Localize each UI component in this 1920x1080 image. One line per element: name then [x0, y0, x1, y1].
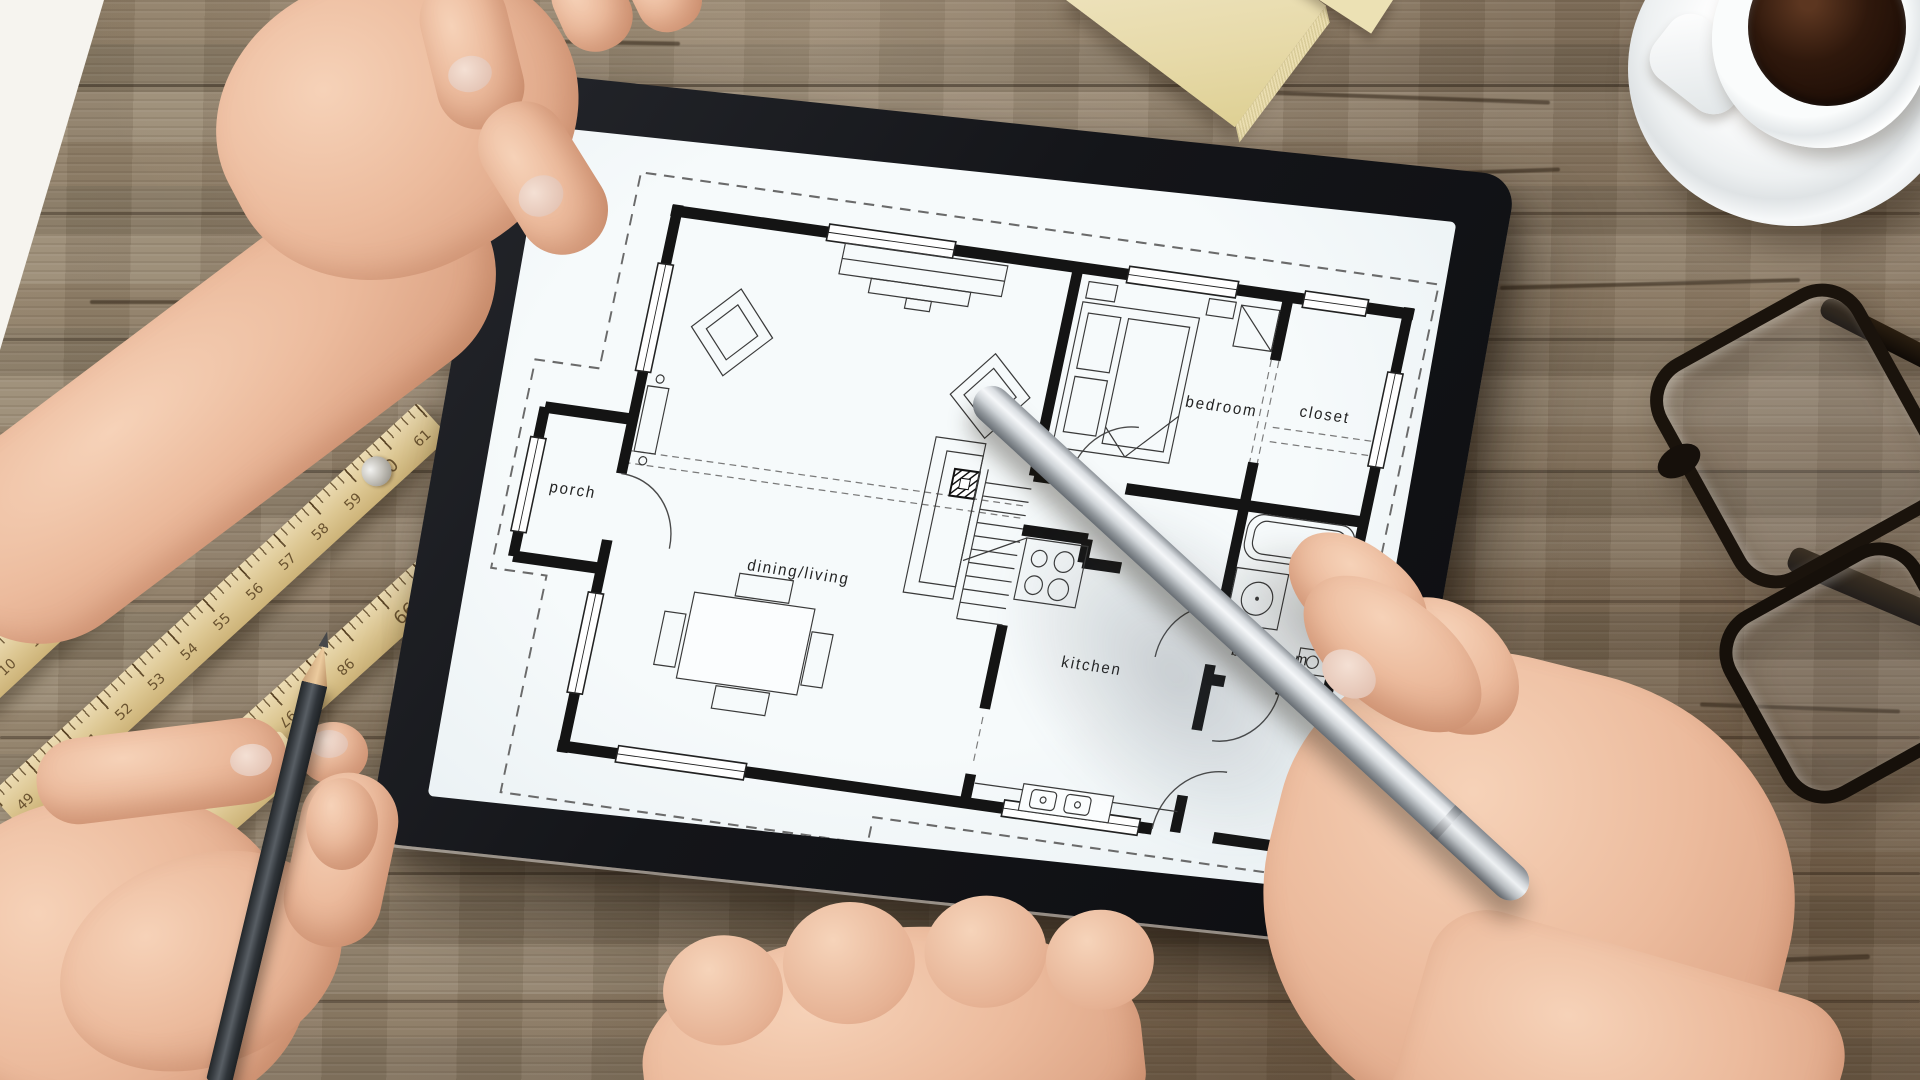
room-label-porch: porch: [548, 479, 598, 503]
ruler-number: 52: [112, 700, 136, 724]
ruler-number: 53: [145, 670, 169, 694]
ruler-number: 55: [210, 610, 234, 634]
dining-table: [646, 564, 843, 722]
room-label-dining-living: dining/living: [746, 557, 852, 589]
wood-crack: [1230, 89, 1550, 104]
paper-sheet: [0, 0, 104, 350]
ruler-number: 61: [410, 426, 434, 450]
wood-desk-background: 9101112131415161718192021 49505152535455…: [0, 0, 1920, 1080]
sticky-note-pad: [1064, 0, 1326, 127]
ruler-number: 57: [276, 550, 300, 574]
ruler-number: 56: [243, 580, 267, 604]
ruler-number: 58: [308, 520, 332, 544]
ruler-number: 10: [0, 655, 19, 679]
pencil-hand-thumb-tip: [306, 778, 378, 870]
ruler-number: 98: [332, 654, 356, 678]
knuckle: [658, 929, 789, 1051]
room-label-bedroom: bedroom: [1184, 393, 1259, 420]
ruler-number: 54: [177, 640, 201, 664]
room-label-closet: closet: [1298, 403, 1352, 427]
closet-interior: [1270, 427, 1374, 456]
knuckle: [777, 895, 921, 1030]
bottom-hand: [631, 903, 1153, 1080]
eyeglasses: [1652, 270, 1920, 740]
ruler-number: 59: [341, 490, 365, 514]
bedroom-furniture: [1052, 281, 1280, 474]
